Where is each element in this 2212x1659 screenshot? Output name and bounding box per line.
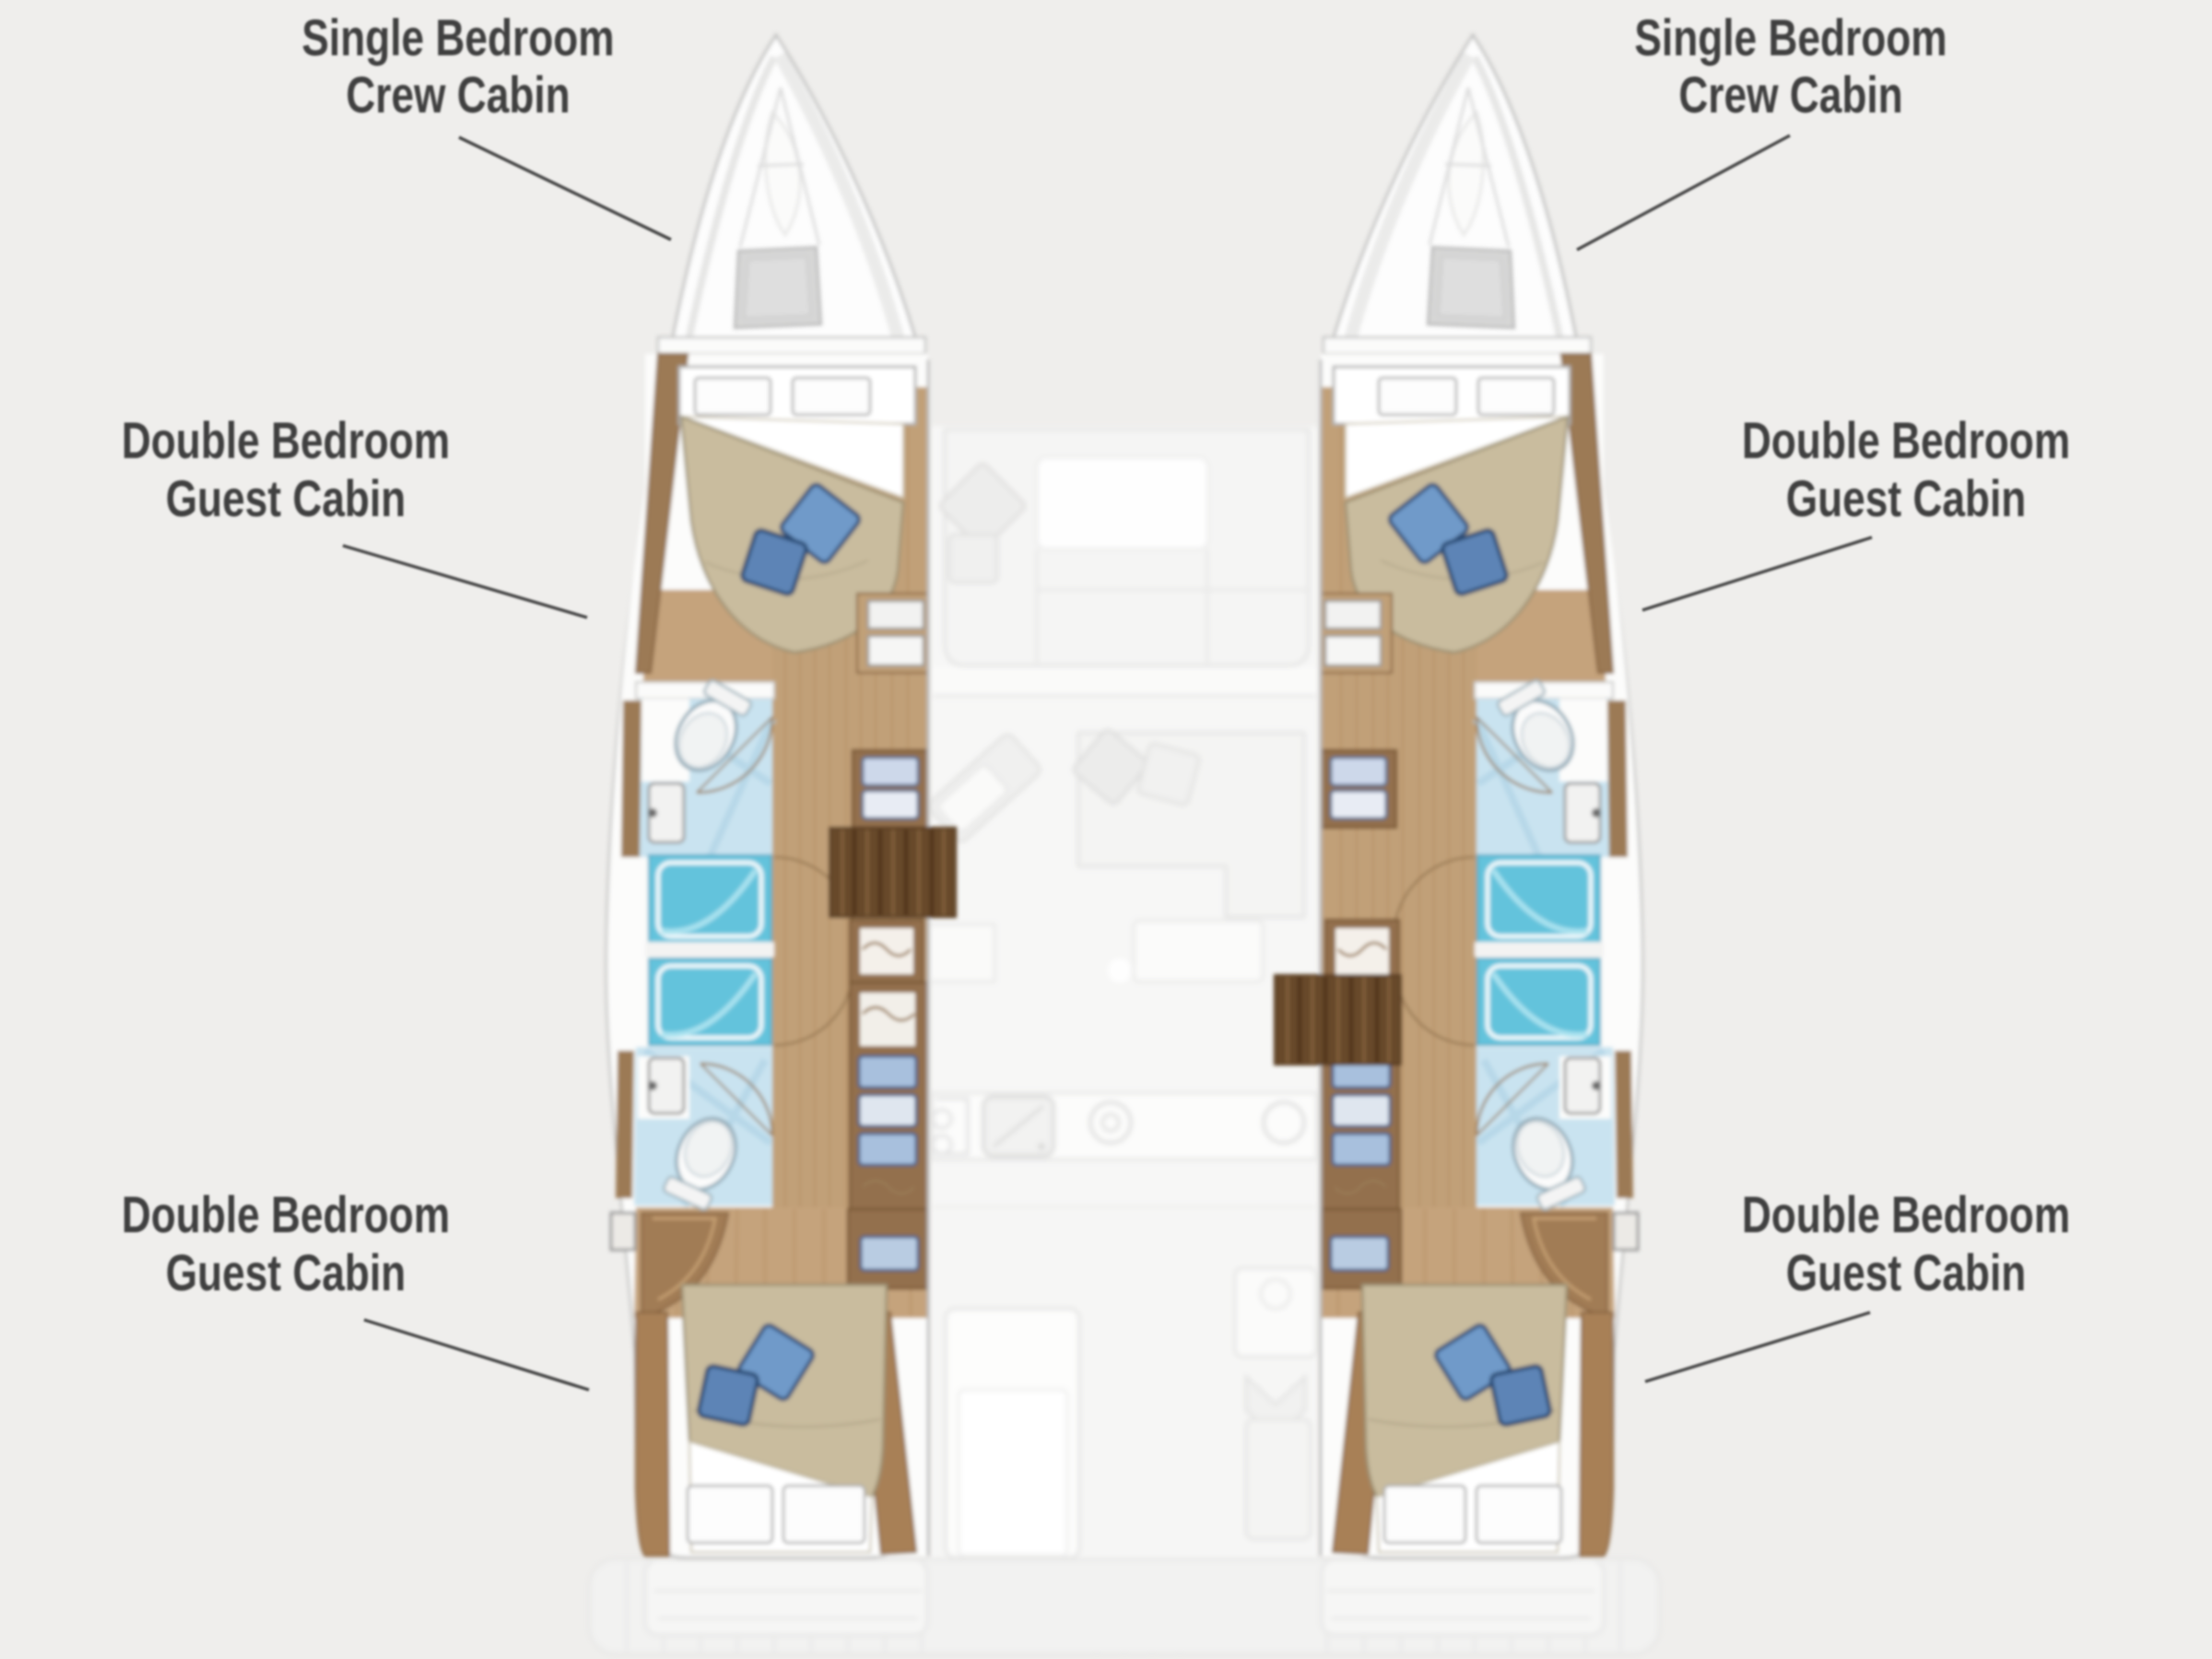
- svg-text:Single Bedroom: Single Bedroom: [1634, 8, 1947, 66]
- svg-text:Guest Cabin: Guest Cabin: [1786, 1243, 2027, 1301]
- svg-text:Double Bedroom: Double Bedroom: [1742, 411, 2070, 469]
- svg-text:Double Bedroom: Double Bedroom: [1742, 1185, 2070, 1243]
- svg-text:Single Bedroom: Single Bedroom: [301, 8, 614, 66]
- svg-text:Double Bedroom: Double Bedroom: [122, 411, 450, 469]
- svg-text:Crew Cabin: Crew Cabin: [1678, 65, 1902, 124]
- svg-text:Guest Cabin: Guest Cabin: [166, 469, 406, 527]
- svg-text:Guest Cabin: Guest Cabin: [1786, 469, 2027, 527]
- svg-text:Double Bedroom: Double Bedroom: [122, 1185, 450, 1243]
- svg-text:Guest Cabin: Guest Cabin: [166, 1243, 406, 1301]
- svg-text:Crew Cabin: Crew Cabin: [346, 65, 570, 124]
